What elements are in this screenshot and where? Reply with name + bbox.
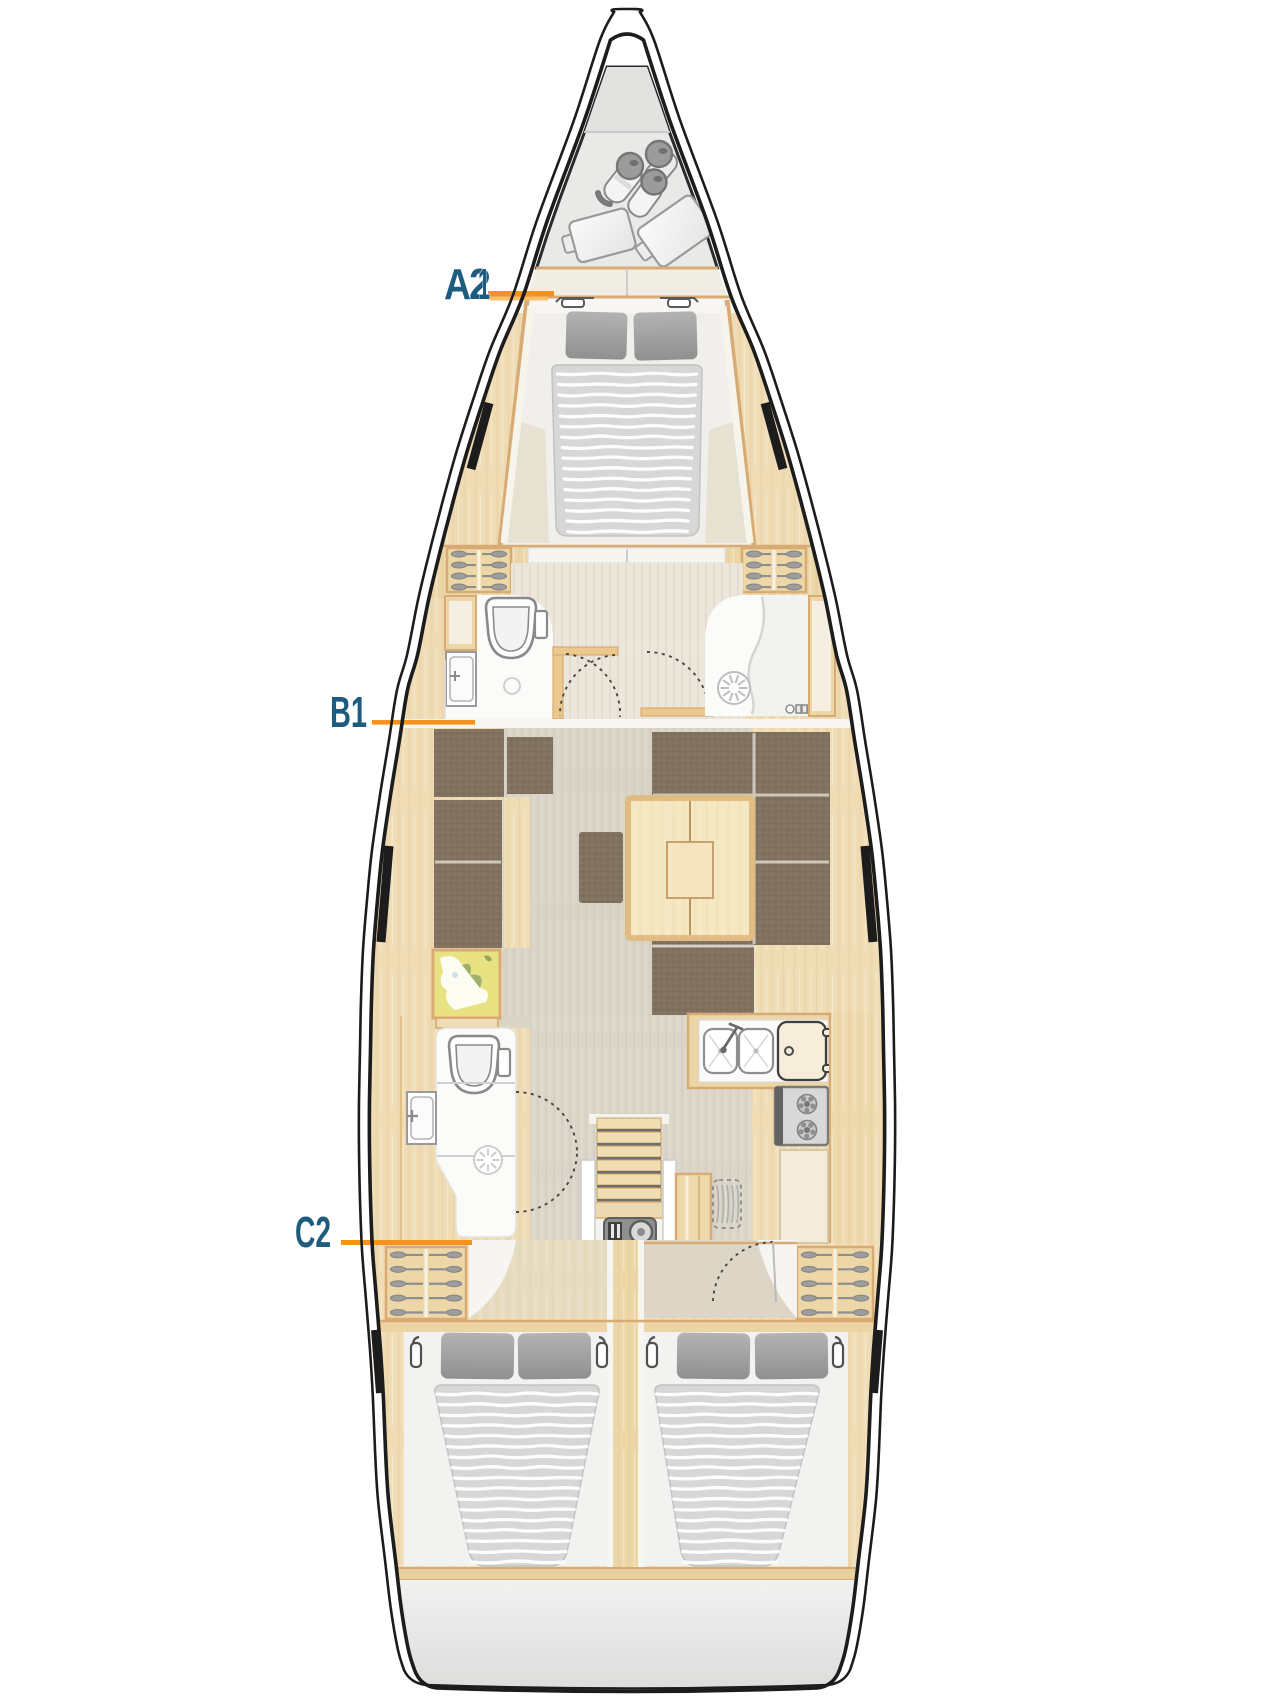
svg-text:C2: C2 bbox=[295, 1208, 331, 1257]
svg-text:B1: B1 bbox=[330, 688, 367, 737]
svg-text:1: 1 bbox=[478, 260, 490, 309]
svg-text:A: A bbox=[444, 260, 471, 309]
